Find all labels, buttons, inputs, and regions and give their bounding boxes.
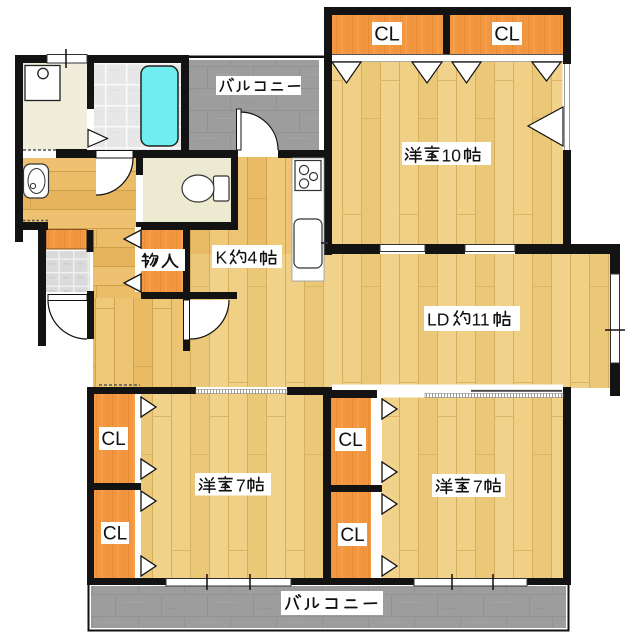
svg-text:K: K xyxy=(216,248,228,268)
svg-text:10: 10 xyxy=(442,146,462,166)
svg-text:CL: CL xyxy=(374,24,400,46)
svg-text:7: 7 xyxy=(236,476,246,496)
svg-text:CL: CL xyxy=(494,24,520,46)
svg-text:LD: LD xyxy=(427,310,449,330)
svg-text:CL: CL xyxy=(338,430,362,451)
svg-text:CL: CL xyxy=(101,429,125,450)
svg-text:7: 7 xyxy=(473,477,483,497)
svg-text:11: 11 xyxy=(472,310,490,330)
svg-text:CL: CL xyxy=(103,524,127,545)
svg-text:4: 4 xyxy=(248,248,258,268)
svg-text:CL: CL xyxy=(340,525,364,546)
